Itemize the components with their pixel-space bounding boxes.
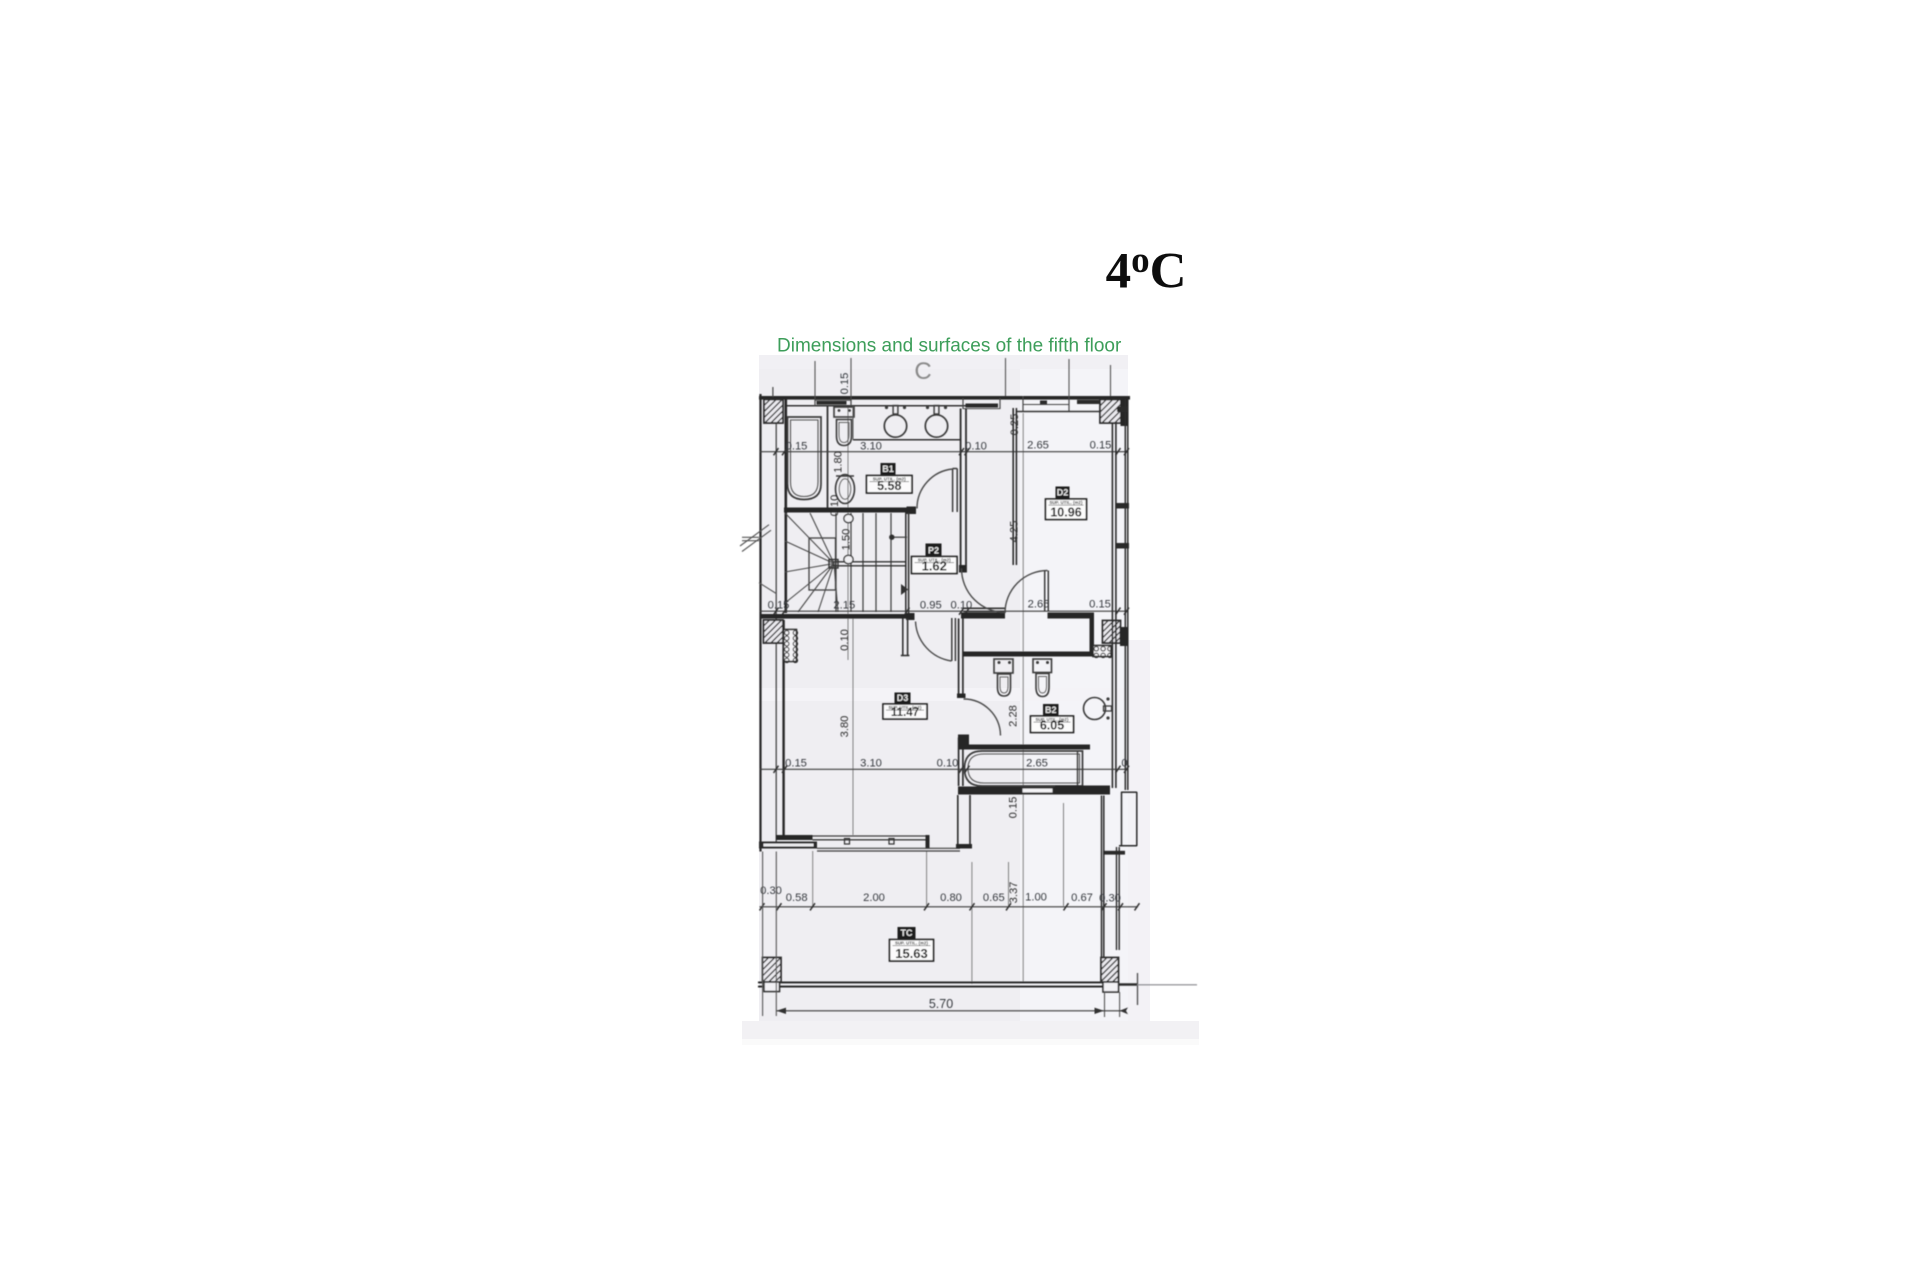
svg-text:0: 0 (1121, 758, 1127, 770)
svg-text:B2: B2 (1045, 705, 1057, 715)
svg-text:0.15: 0.15 (785, 758, 807, 770)
svg-text:2.28: 2.28 (1008, 705, 1020, 727)
svg-text:1.50: 1.50 (841, 529, 853, 551)
svg-text:0.10: 0.10 (951, 600, 973, 612)
svg-text:D3: D3 (897, 693, 909, 703)
svg-text:11.47: 11.47 (891, 707, 919, 719)
svg-text:0.15: 0.15 (786, 441, 808, 453)
svg-text:C: C (914, 358, 931, 385)
svg-text:1.00: 1.00 (1025, 892, 1047, 904)
svg-text:2.65: 2.65 (1026, 758, 1048, 770)
svg-text:SUP. UTIL. (m2): SUP. UTIL. (m2) (1049, 500, 1083, 505)
svg-text:0.15: 0.15 (768, 600, 790, 612)
svg-text:3.80: 3.80 (839, 716, 851, 738)
svg-text:SUP. UTIL. (m2): SUP. UTIL. (m2) (895, 940, 929, 945)
svg-text:0.30: 0.30 (1099, 893, 1121, 905)
svg-text:0.25: 0.25 (1009, 414, 1021, 436)
svg-text:2.65: 2.65 (1028, 599, 1050, 611)
svg-text:0.10: 0.10 (937, 758, 959, 770)
svg-text:1.80: 1.80 (833, 451, 845, 473)
svg-text:3.37: 3.37 (1008, 882, 1020, 904)
svg-text:0.10: 0.10 (839, 629, 851, 651)
svg-text:0.15: 0.15 (1090, 440, 1112, 452)
svg-text:B1: B1 (882, 464, 894, 474)
svg-text:0.10: 0.10 (965, 441, 987, 453)
svg-text:Dimensions and surfaces of the: Dimensions and surfaces of the fifth flo… (777, 336, 1122, 357)
svg-text:0.80: 0.80 (940, 892, 962, 904)
svg-text:5.70: 5.70 (929, 997, 953, 1011)
svg-text:0.30: 0.30 (760, 885, 782, 897)
svg-text:0.95: 0.95 (920, 600, 942, 612)
svg-text:4.25: 4.25 (1009, 521, 1021, 543)
svg-text:0.58: 0.58 (786, 892, 808, 904)
svg-text:5.58: 5.58 (877, 479, 901, 493)
svg-text:0.10: 0.10 (829, 495, 841, 517)
svg-text:6.05: 6.05 (1040, 718, 1064, 732)
svg-text:0.15: 0.15 (1089, 599, 1111, 611)
svg-text:D2: D2 (1057, 488, 1069, 498)
svg-text:TC: TC (901, 928, 913, 938)
svg-text:P2: P2 (928, 546, 939, 556)
svg-text:2.65: 2.65 (1027, 440, 1049, 452)
svg-text:1.62: 1.62 (922, 558, 947, 573)
svg-text:15.63: 15.63 (895, 946, 928, 961)
svg-text:4oC: 4oC (1106, 240, 1187, 300)
svg-text:0.15: 0.15 (1008, 797, 1020, 819)
svg-text:10.96: 10.96 (1050, 505, 1081, 519)
svg-text:0.15: 0.15 (839, 373, 851, 395)
svg-text:3.10: 3.10 (860, 758, 882, 770)
svg-text:0.65: 0.65 (983, 892, 1005, 904)
svg-text:0.67: 0.67 (1071, 892, 1093, 904)
svg-text:2.15: 2.15 (833, 600, 855, 612)
svg-text:3.10: 3.10 (860, 441, 882, 453)
svg-text:2.00: 2.00 (863, 892, 885, 904)
